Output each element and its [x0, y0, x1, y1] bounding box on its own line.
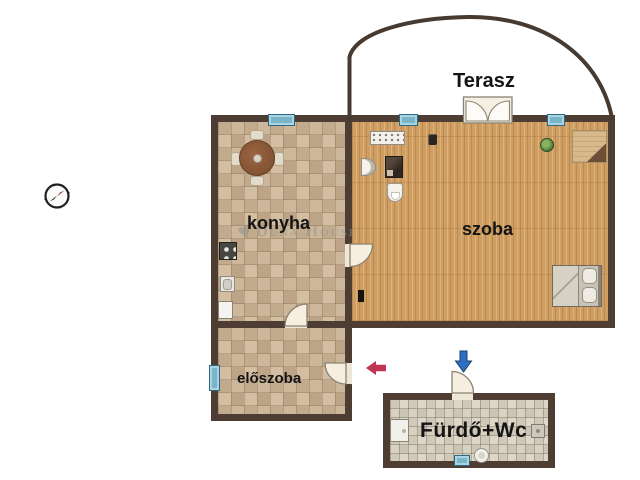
plant-icon: [540, 138, 554, 152]
label-hallway: előszoba: [237, 370, 301, 387]
dining-set: [230, 128, 285, 188]
planter-inner: [391, 192, 400, 200]
label-living: szoba: [462, 219, 513, 240]
label-bathroom: Fürdő+Wc: [420, 419, 527, 443]
bed-icon: [552, 265, 602, 307]
wall-speaker-icon: [428, 134, 437, 145]
mattress: [553, 266, 579, 306]
floor-plan: Terasz konyha szoba előszoba Fürdő+Wc ♥ …: [0, 0, 640, 480]
down-arrow-icon: [456, 351, 472, 372]
sink-drain: [536, 429, 540, 433]
left-arrow-icon: [366, 361, 386, 375]
label-kitchen: konyha: [247, 213, 310, 234]
pillow-icon: [582, 268, 597, 284]
washing-machine-icon: [390, 419, 409, 442]
chair-icon: [250, 176, 264, 186]
door-bathroom: [452, 372, 474, 394]
pillow-icon: [582, 287, 597, 303]
desk-icon: [572, 130, 607, 163]
living-window-left: [399, 114, 418, 126]
desk-corner: [573, 131, 606, 162]
bathroom-window: [454, 455, 470, 466]
tv-icon: [385, 156, 403, 178]
label-terrace: Terasz: [453, 70, 515, 93]
compass-icon: [44, 184, 70, 209]
planter-icon: [387, 183, 403, 202]
stove-icon: [219, 242, 237, 260]
living-window-right: [547, 114, 565, 126]
sink-basin: [223, 279, 232, 290]
tv-detail: [387, 170, 393, 176]
bath-sink-icon: [531, 424, 545, 438]
washer-knob: [402, 429, 406, 433]
toilet-lid: [478, 452, 485, 459]
chair-icon: [250, 130, 264, 140]
kitchen-sink-icon: [220, 276, 235, 292]
headboard: [598, 266, 601, 306]
radiator-icon: [370, 131, 405, 145]
toilet-icon: [474, 448, 489, 463]
fridge-icon: [218, 301, 233, 319]
kitchen-window: [268, 114, 295, 126]
table-center: [253, 154, 262, 163]
chair-icon: [274, 152, 284, 166]
wall-switch-icon: [358, 290, 364, 302]
hallway-window: [209, 365, 220, 391]
